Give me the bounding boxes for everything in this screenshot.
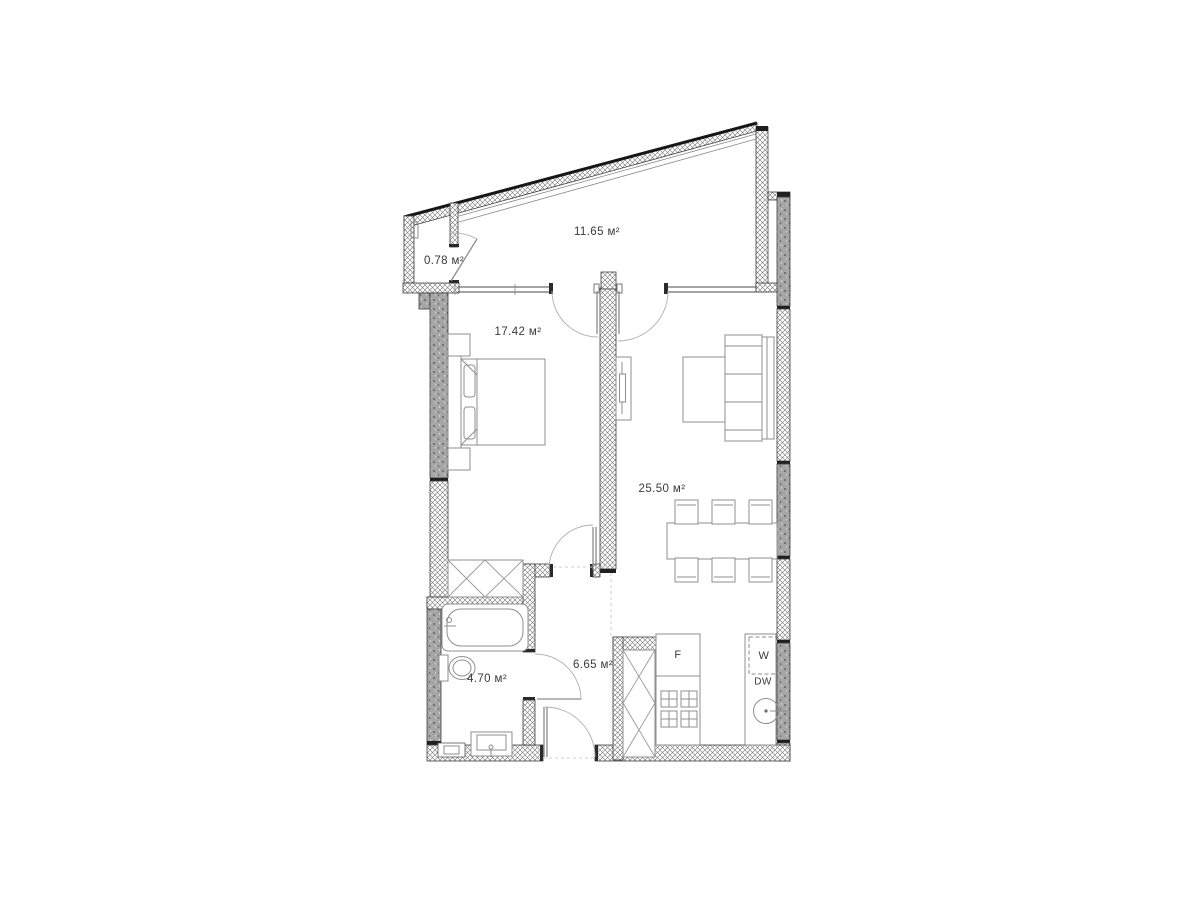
bathtub [442,604,528,651]
bed [448,356,545,448]
kitchen-shaft-cabinet [623,650,655,757]
zone-dashed-lines [553,567,611,637]
floorplan-drawing [0,0,1200,900]
nightstand [448,334,470,356]
area-label-bedroom: 17.42 м² [495,326,542,338]
floorplan-canvas: 11.65 м² 0.78 м² 17.42 м² 25.50 м² 6.65 … [0,0,1200,900]
living-balcony-door [616,291,668,341]
area-label-hallway: 6.65 м² [573,659,613,671]
bedroom-balcony-door [552,291,600,337]
area-label-bathroom: 4.70 м² [467,673,507,685]
coffee-table [683,357,730,422]
dining-table [667,523,777,559]
area-label-storage: 0.78 м² [424,255,464,267]
entry-door [543,707,595,758]
appliance-label-dishwasher: DW [754,677,771,688]
appliance-label-washer: W [759,650,770,662]
wardrobe [448,560,523,597]
sofa [725,335,774,441]
appliance-label-fridge: F [674,649,681,661]
bathroom-sink [471,732,512,757]
nightstand [448,448,470,470]
area-label-balcony: 11.65 м² [574,226,620,238]
area-label-living: 25.50 м² [639,483,686,495]
bedroom-hallway-door [549,525,596,569]
tv-stand [616,357,631,420]
